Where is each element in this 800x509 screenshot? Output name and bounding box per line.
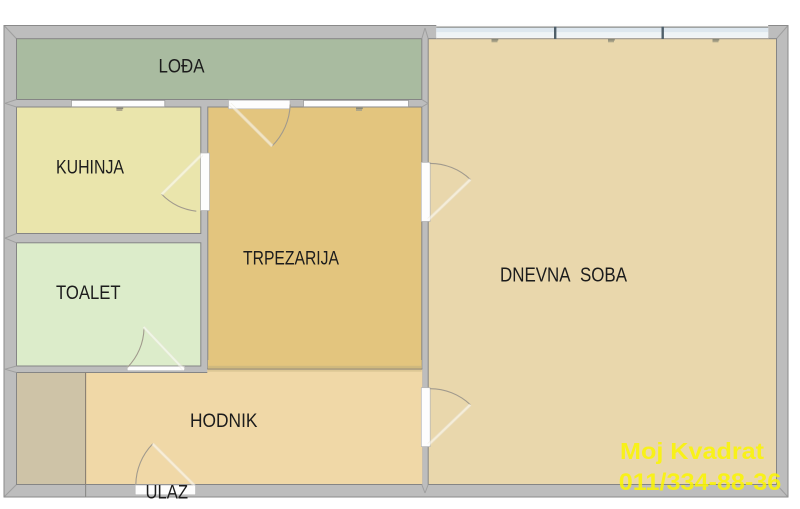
svg-text:TOALET: TOALET	[56, 283, 121, 304]
svg-text:ULAZ: ULAZ	[146, 482, 189, 503]
svg-text:Moj Kvadrat: Moj Kvadrat	[620, 438, 764, 464]
svg-text:TRPEZARIJA: TRPEZARIJA	[243, 249, 339, 270]
svg-text:KUHINJA: KUHINJA	[56, 157, 124, 178]
svg-text:DNEVNA SOBA: DNEVNA SOBA	[500, 263, 627, 286]
svg-text:HODNIK: HODNIK	[190, 411, 258, 432]
svg-text:LOĐA: LOĐA	[159, 56, 205, 77]
svg-text:011/334-88-36: 011/334-88-36	[619, 469, 782, 496]
